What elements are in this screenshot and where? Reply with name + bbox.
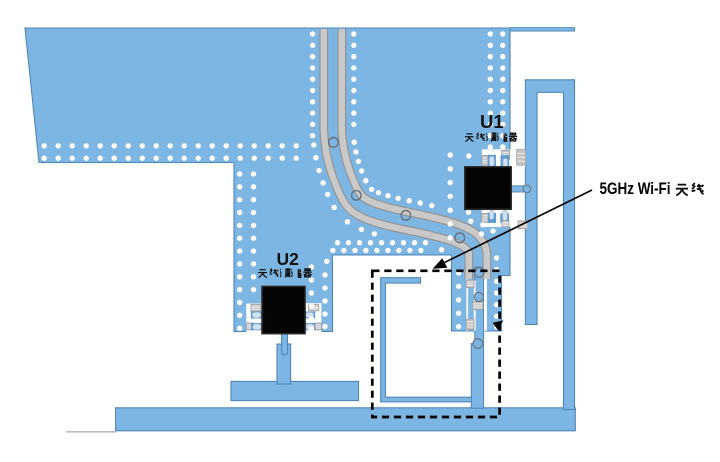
svg-text:U1: U1 bbox=[480, 111, 504, 132]
svg-text:5GHz Wi-Fi: 5GHz Wi-Fi bbox=[600, 180, 671, 198]
svg-text:U2: U2 bbox=[277, 249, 300, 269]
